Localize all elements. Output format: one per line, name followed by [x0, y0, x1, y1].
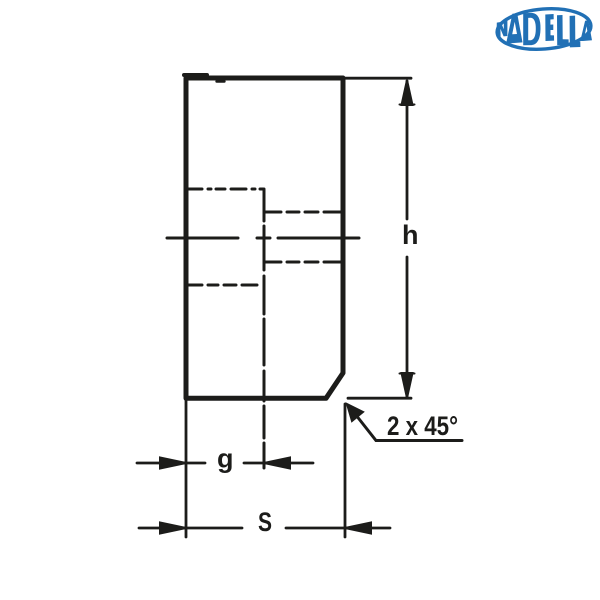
svg-text:S: S	[258, 507, 272, 537]
svg-text:2 x 45°: 2 x 45°	[387, 411, 458, 441]
svg-text:g: g	[217, 444, 234, 474]
svg-text:h: h	[402, 220, 419, 250]
